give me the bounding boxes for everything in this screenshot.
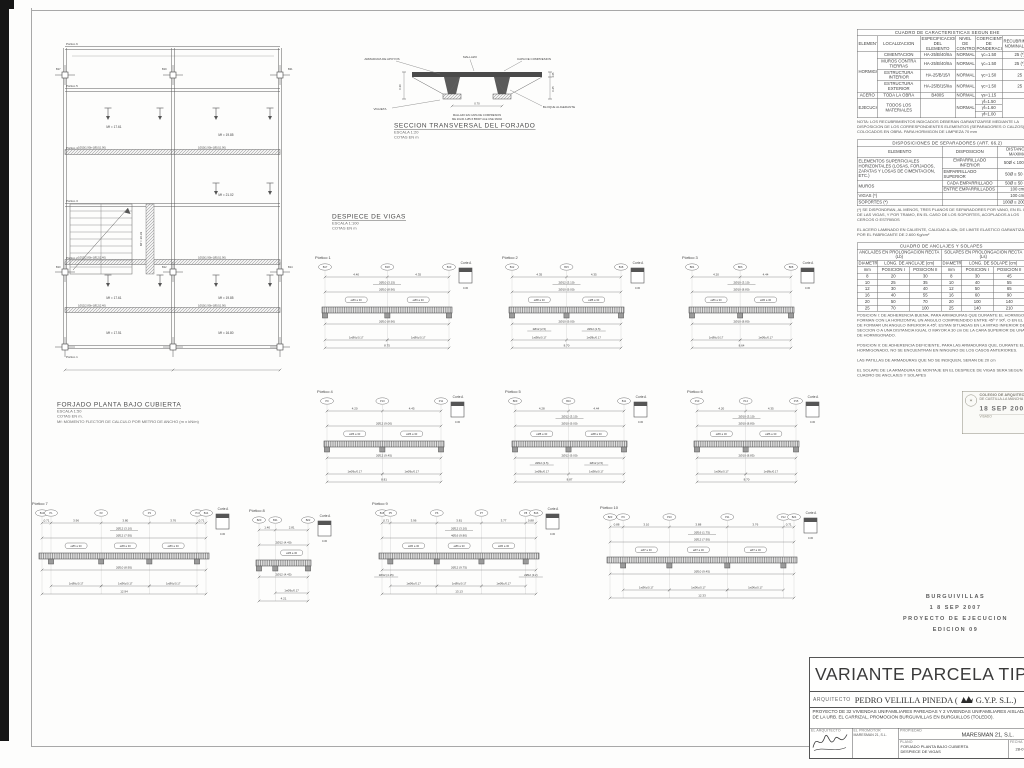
- visado-stamp: ✶ COLEGIO DE ARQUITECTOS DE CASTILLA-LA …: [962, 391, 1024, 435]
- span-dim: 3.80: [122, 518, 128, 522]
- corte-section-slab: [318, 521, 331, 525]
- beam-support: [743, 447, 748, 452]
- portico-title: Pórtico 2: [502, 255, 519, 260]
- table-cell: 70: [877, 305, 909, 311]
- span-dim: 0.88: [614, 522, 620, 526]
- stirrup-spacing: 1eØ6c/0.17: [406, 581, 421, 585]
- portico-detail: Pórtico 2B12B15B184.354.352Ø12 (3.10)2Ø1…: [500, 252, 655, 356]
- project-description: PROYECTO DE 32 VIVIENDAS UNIFAMILIARES P…: [810, 708, 1024, 729]
- separadores-note2: EL ACERO LAMINADO EN CALIENTE, CALIDAD A…: [857, 227, 1024, 237]
- stirrup-spacing: 1eØ6c/0.17: [284, 588, 299, 592]
- corte-label: Corte A: [461, 261, 473, 265]
- stirrup-tag: eØ6 a 30: [760, 298, 772, 302]
- beam-support: [322, 313, 327, 318]
- gyp-logo-icon: [961, 692, 973, 708]
- table-anclajes: CUADRO DE ANCLAJES Y SOLAPESANCLAJES EN …: [857, 242, 1024, 311]
- beam-support: [305, 566, 310, 571]
- rebar-top: 2Ø10 (8.90): [379, 287, 395, 291]
- span-dim: 3.96: [411, 518, 417, 522]
- property-label: PROPIEDAD: [900, 729, 922, 733]
- rebar-note2: 2Ø12 (4.15): [379, 573, 394, 577]
- stirrup-spacing: 1eØ8c/0.17: [535, 469, 550, 473]
- stirrup-tag: eØ6 a 30: [351, 298, 363, 302]
- corte-dim: 0.30: [635, 286, 641, 290]
- span-dim: 2.81: [289, 525, 295, 529]
- beam-support: [273, 566, 278, 571]
- corte-dim: 0.30: [322, 539, 328, 543]
- beam-bar: [607, 557, 797, 563]
- table-cell: ELEMENTO: [857, 146, 942, 157]
- table-cell: DIAMETRO: [941, 260, 961, 266]
- architect-label: ARQUITECTO: [810, 697, 855, 703]
- rebar-bottom: 2Ø12 (4.45): [275, 573, 291, 577]
- span-dim: 3.88: [695, 522, 701, 526]
- span-dim: 4.28: [539, 406, 545, 410]
- stirrup-tag: eØ6 a 30: [765, 432, 777, 436]
- beam-support: [479, 559, 484, 564]
- beam-support: [385, 313, 390, 318]
- span-dim: 4.35: [591, 272, 597, 276]
- rebar-bottom: 2Ø12 (9.00): [561, 454, 577, 458]
- corte-label: Corte A: [218, 507, 230, 511]
- stirrup-spacing: 1eØ6c/0.17: [411, 335, 426, 339]
- table-cell: ELEMENTO: [857, 36, 877, 52]
- portico-title: Pórtico 7: [32, 501, 49, 506]
- rebar-note2: 2Ø12 (2.5): [587, 327, 600, 331]
- span-dim: 3.96: [73, 518, 79, 522]
- table-cell: LOCALIZACION: [877, 36, 920, 52]
- support-tag: P9: [325, 399, 329, 403]
- support-tag: P10: [380, 399, 385, 403]
- portico-detail: Pórtico 6P13P14P154.204.352Ø10 (3.10)2Ø1…: [685, 386, 830, 490]
- support-tag: B14: [204, 511, 209, 515]
- beam-support: [793, 447, 798, 452]
- rebar-note: 2Ø10 (3.15): [379, 281, 395, 285]
- edition-line-project-name: BURGUIVILLAS: [888, 591, 1023, 602]
- portico-detail: Pórtico 5B09B10B114.284.442Ø12 (3.10)2Ø1…: [503, 386, 658, 490]
- beam-support: [48, 559, 53, 564]
- rebar-bottom: 2Ø10 (9.45): [694, 570, 710, 574]
- corte-section-slab: [631, 268, 644, 272]
- support-tag: B11: [622, 399, 627, 403]
- support-tag: B06: [738, 265, 743, 269]
- table-cell: γf=1.00: [975, 111, 1002, 117]
- corte-section-slab: [216, 514, 229, 518]
- table-cell: NORMAL: [955, 70, 975, 81]
- table-cell: ENTRE EMPARRILLADOS: [942, 186, 997, 192]
- edition-line-number: EDICION 09: [888, 624, 1023, 635]
- total-dim: 8.75: [384, 344, 390, 348]
- portico-title: Pórtico 1: [315, 255, 332, 260]
- total-dim: 8.64: [739, 344, 745, 348]
- corte-label: Corte A: [806, 511, 818, 515]
- corte-label: Corte A: [320, 514, 332, 518]
- corte-section-slab: [634, 402, 647, 406]
- corte-section-slab: [806, 402, 819, 406]
- edition-line-phase: PROYECTO DE EJECUCION: [888, 613, 1023, 624]
- property-and-sheet-cell: PROPIEDAD MARESMAN 21, S.L. PLANO FORJAD…: [899, 729, 1024, 759]
- stirrup-spacing: 1eØ6c/0.17: [764, 469, 779, 473]
- portico-title: Pórtico 4: [317, 389, 334, 394]
- span-dim: 4.44: [593, 406, 599, 410]
- stirrup-tag: eØ7 a 30: [641, 548, 653, 552]
- sheet-variant-title: VARIANTE PARCELA TIPO 58/1: [810, 664, 1024, 685]
- table-cell: MUROS CONTRA TIERRAS: [877, 58, 920, 69]
- stirrup-tag: eØ6 a 30: [286, 551, 298, 555]
- corte-label: Corte A: [633, 261, 645, 265]
- table-cell: NIVEL DE CONTROL: [955, 36, 975, 52]
- support-tag: B19: [447, 265, 452, 269]
- beam-bar: [694, 441, 799, 447]
- stirrup-tag: eØ6 a 30: [349, 432, 361, 436]
- rebar-top: 2Ø12 (7.95): [116, 533, 132, 537]
- stirrup-spacing: 1eØ8c/0.17: [589, 469, 604, 473]
- support-tag: B04: [690, 265, 695, 269]
- architect-row: ARQUITECTO PEDRO VELILLA PINEDA ( G.Y.P.…: [810, 692, 1024, 708]
- stirrup-tag: eØ6 a 30: [498, 544, 510, 548]
- caracteristicas-note: NOTA: LOS RECUBRIMIENTOS INDICADOS DEBER…: [857, 119, 1024, 134]
- beam-support: [621, 563, 626, 568]
- table-cell: [942, 199, 997, 205]
- stirrup-tag: eØ6 a 30: [408, 544, 420, 548]
- beam-support: [509, 313, 514, 318]
- support-tag: P9: [622, 515, 626, 519]
- rebar-note: 2Ø12 (3.10): [558, 281, 574, 285]
- span-dim: 1.40: [264, 525, 270, 529]
- stirrup-spacing: 1eØ6c/0.17: [452, 581, 467, 585]
- rebar-top: 2Ø12 (9.00): [376, 421, 392, 425]
- table-cell: 25: [941, 305, 961, 311]
- table-cell: HORMIGON: [857, 52, 877, 92]
- promoter-signature-cell: EL PROMOTOR MARESMAN 21, S.L.: [853, 729, 900, 759]
- support-tag: B10: [566, 399, 571, 403]
- total-dim: 12.94: [120, 590, 128, 594]
- corte-dim: 0.30: [805, 286, 811, 290]
- table-cell: MUROS: [857, 180, 942, 193]
- table-separadores: DISPOSICIONES DE SEPARADORES (ART. 66.2)…: [857, 139, 1024, 205]
- sheet-name-line2: DESPIECE DE VIGAS: [901, 750, 1008, 755]
- rebar-bottom: 2Ø10 (8.95): [116, 566, 132, 570]
- date-label: FECHA: [1010, 741, 1023, 745]
- architect-firm: G.Y.P. S.L.): [976, 695, 1016, 705]
- table-cell: 25: [1002, 70, 1024, 81]
- table-cell: ACERO: [857, 92, 877, 98]
- portico-detail: Pórtico 1B17B18B194.404.352Ø10 (3.15)2Ø1…: [313, 252, 483, 356]
- portico-detail: Pórtico 4P9P10P114.204.452Ø12 (9.00)eØ6 …: [315, 386, 475, 490]
- stirrup-tag: eØ7 a 30: [750, 548, 762, 552]
- support-tag: P14: [743, 399, 748, 403]
- title-block-lower: PROYECTO DE 32 VIVIENDAS UNIFAMILIARES P…: [810, 708, 1024, 758]
- rebar-note2: 2Ø12 (2.5): [535, 461, 548, 465]
- support-tag: B12: [510, 265, 515, 269]
- table-cell: EJECUCION: [857, 99, 877, 118]
- table-cell: 210: [993, 305, 1024, 311]
- corte-section-slab: [451, 402, 464, 406]
- stamp-college-line2: DE CASTILLA-LA MANCHA · TOLEDO: [980, 398, 1024, 402]
- table-cell: 50Ø ≤ 50 cm: [997, 169, 1024, 180]
- corte-dim: 0.30: [638, 420, 644, 424]
- beam-support: [194, 559, 199, 564]
- support-tag: B18: [385, 265, 390, 269]
- table-cell: COEFICIENTE DE PONDERACION: [975, 36, 1002, 52]
- beam-bar: [689, 307, 794, 313]
- table-cell: NORMAL: [955, 81, 975, 92]
- table-cell: TODA LA OBRA: [877, 92, 920, 98]
- portico-title: Pórtico 9: [372, 501, 389, 506]
- portico-detail: Pórtico 9B15P5P6P7P8B160.713.963.813.770…: [370, 498, 570, 602]
- support-tag: P12: [781, 515, 786, 519]
- span-dim: 4.35: [768, 406, 774, 410]
- stirrup-tag: eØ6 a 30: [454, 544, 466, 548]
- table-cell: γc=1.50: [975, 70, 1002, 81]
- support-tag: B08: [789, 265, 794, 269]
- beam-bar: [322, 307, 452, 313]
- support-tag: P11: [725, 515, 730, 519]
- beam-support: [781, 563, 786, 568]
- table-cell: LONG. DE SOLAPE (cm): [961, 260, 1024, 266]
- corte-section-slab: [801, 268, 814, 272]
- table-cell: HA-25/B/15/I: [920, 70, 955, 81]
- separadores-note1: (*) SE DISPONDRAN, AL MENOS, TRES PLANOS…: [857, 207, 1024, 222]
- table-cell: NORMAL: [955, 92, 975, 98]
- table-cell: POSICION II: [909, 267, 941, 273]
- corte-dim: 0.30: [550, 532, 556, 536]
- title-block: VARIANTE PARCELA TIPO 58/1 ARQUITECTO PE…: [809, 657, 1024, 759]
- support-tag: B17: [323, 265, 328, 269]
- total-dim: 8.70: [564, 344, 570, 348]
- stirrup-tag: eØ8 a 30: [591, 432, 603, 436]
- beam-bar: [324, 441, 444, 447]
- rebar-bottom: 2Ø10 (9.00): [558, 320, 574, 324]
- rebar-note: 2Ø10 (3.10): [733, 281, 749, 285]
- table-cell: NORMAL: [955, 58, 975, 69]
- stamp-emblem-icon: ✶: [963, 392, 980, 434]
- beam-support: [512, 447, 517, 452]
- corte-dim: 0.30: [810, 420, 816, 424]
- span-dim: 4.35: [536, 272, 542, 276]
- beam-support: [689, 313, 694, 318]
- support-tag: P10: [667, 515, 672, 519]
- corte-section-slab: [804, 518, 817, 522]
- table-cell: RECUBRIMIENTO NOMINAL (mm): [1002, 36, 1024, 52]
- table-cell: ESTRUCTURA INTERIOR: [877, 70, 920, 81]
- rebar-bottom: 2Ø12 (9.75): [451, 566, 467, 570]
- corte-dim: 0.30: [455, 420, 461, 424]
- rebar-note2: 2Ø12 (2.5): [590, 461, 603, 465]
- beam-bar: [379, 553, 539, 559]
- table-cell: SOPORTES (*): [857, 199, 942, 205]
- beam-bar: [512, 441, 627, 447]
- stirrup-spacing: 1eØ6c/0.17: [347, 469, 362, 473]
- corte-label: Corte A: [548, 507, 560, 511]
- table-cell: 50Ø ≤ 100 cm: [997, 157, 1024, 168]
- corte-label: Corte A: [453, 395, 465, 399]
- corte-dim: 0.30: [220, 532, 226, 536]
- span-dim: 0.71: [786, 522, 792, 526]
- stirrup-spacing: 1eØ6c/0.17: [496, 581, 511, 585]
- table-cell: EMPARRILLADO INFERIOR: [942, 157, 997, 168]
- support-tag: P4: [195, 511, 199, 515]
- stirrup-tag: eØ8 a 30: [534, 298, 546, 302]
- portico-title: Pórtico 6: [687, 389, 704, 394]
- stirrup-spacing: 1eØ6c/0.17: [758, 335, 773, 339]
- span-dim: 3.81: [456, 518, 462, 522]
- beam-support: [99, 559, 104, 564]
- total-dim: 8.81: [381, 478, 387, 482]
- support-tag: B09: [513, 399, 518, 403]
- total-dim: 12.33: [698, 594, 706, 598]
- beam-support: [566, 447, 571, 452]
- span-dim: 4.40: [353, 272, 359, 276]
- anclajes-note3: LAS PATILLAS DE ARMADURAS QUE NO SE INDI…: [857, 358, 1024, 363]
- beam-support: [380, 447, 385, 452]
- title-block-heading-row: VARIANTE PARCELA TIPO 58/1: [810, 658, 1024, 692]
- support-tag: P1: [49, 511, 53, 515]
- support-tag: B18: [619, 265, 624, 269]
- table-cell: POSICION II: [993, 267, 1024, 273]
- stirrup-spacing: 1eØ6c/0.17: [349, 335, 364, 339]
- span-dim: 3.77: [501, 518, 507, 522]
- beam-support: [667, 563, 672, 568]
- table-cell: ESTRUCTURA EXTERIOR: [877, 81, 920, 92]
- support-tag: P3: [148, 511, 152, 515]
- scanned-structural-plan-sheet: { "plan": { "title": "FORJADO PLANTA BAJ…: [0, 0, 1024, 768]
- beam-support: [446, 313, 451, 318]
- span-dim: 4.35: [415, 272, 421, 276]
- span-dim: 4.20: [718, 406, 724, 410]
- rebar-top: 4Ø16 (9.80): [451, 533, 467, 537]
- beam-support: [388, 559, 393, 564]
- sheet-name-label: PLANO: [900, 741, 913, 745]
- stirrup-spacing: 1eØ6c/0.17: [709, 335, 724, 339]
- rebar-top: 2Ø10 (9.00): [558, 287, 574, 291]
- table-cell: γc=1.50: [975, 81, 1002, 92]
- rebar-note: 2Ø10 (3.10): [738, 415, 754, 419]
- span-dim: 0.71: [44, 518, 50, 522]
- table-cell: POSICION I: [961, 267, 993, 273]
- beam-bar: [509, 307, 624, 313]
- stirrup-tag: eØ8 a 30: [536, 432, 548, 436]
- support-tag: B23: [608, 515, 613, 519]
- span-dim: 4.44: [763, 272, 769, 276]
- rebar-top: 2Ø12 (4.40): [275, 540, 291, 544]
- portico-title: Pórtico 8: [249, 508, 266, 513]
- beam-support: [147, 559, 152, 564]
- total-dim: 13.13: [455, 590, 463, 594]
- support-tag: B15: [564, 265, 569, 269]
- table-cell: [1002, 99, 1024, 118]
- stirrup-tag: eØ6 a 30: [711, 298, 723, 302]
- stamp-date: 18 SEP 2007: [980, 404, 1024, 412]
- architect-signature-cell: EL ARQUITECTO: [810, 729, 853, 759]
- edition-stamp: BURGUIVILLAS 1 8 SEP 2007 PROYECTO DE EJ…: [888, 591, 1023, 653]
- span-dim: 0.71: [199, 518, 205, 522]
- table-cell: 140: [961, 305, 993, 311]
- portico-title: Pórtico 10: [600, 505, 619, 510]
- stirrup-tag: eØ6 a 30: [71, 544, 83, 548]
- rebar-bottom: 2Ø10 (8.90): [379, 320, 395, 324]
- table-cell: HA-25/B/40/IIa: [920, 58, 955, 69]
- stirrup-tag: eØ7 a 30: [693, 548, 705, 552]
- beam-support: [564, 313, 569, 318]
- beam-support: [438, 447, 443, 452]
- stamp-visado-label: VISADO: [980, 414, 1024, 419]
- table-cell: POSICION I: [877, 267, 909, 273]
- corte-label: Corte A: [803, 261, 815, 265]
- span-dim: 0.71: [383, 518, 389, 522]
- rebar-note2: 2Ø12 (2.5): [533, 327, 546, 331]
- table-cell: HA-25/B/40/IIa: [920, 52, 955, 58]
- support-tag: B22: [306, 518, 311, 522]
- span-dim: 4.20: [352, 406, 358, 410]
- portico-detail: Pórtico 7B13P1P2P3P4B140.713.963.803.760…: [30, 498, 240, 602]
- beam-support: [434, 559, 439, 564]
- promoter-sub-label: MARESMAN 21, S.L.: [854, 734, 887, 738]
- span-dim: 4.45: [409, 406, 415, 410]
- beam-support: [618, 313, 623, 318]
- corte-section-slab: [459, 268, 472, 272]
- stirrup-tag: eØ6 a 30: [413, 298, 425, 302]
- rebar-note2: 2Ø12 (3.2): [524, 573, 537, 577]
- corte-section-slab: [546, 514, 559, 518]
- stirrup-spacing: 1eØ6c/0.17: [691, 585, 706, 589]
- table-cell: 25: [1002, 81, 1024, 92]
- stirrup-spacing: 1eØ6c/0.17: [639, 585, 654, 589]
- rebar-top: 2Ø10 (9.00): [561, 421, 577, 425]
- support-tag: P7: [480, 511, 484, 515]
- stirrup-tag: eØ8 a 30: [588, 298, 600, 302]
- span-dim: 4.20: [713, 272, 719, 276]
- table-cell: CADA EMPARRILLADO: [942, 180, 997, 186]
- table-cell: DIAMETRO: [857, 260, 877, 266]
- portico-detail: Pórtico 8B20B21B221.402.812Ø12 (4.40)eØ6…: [247, 505, 342, 609]
- stirrup-spacing: 1eØ8c/0.17: [587, 335, 602, 339]
- support-tag: B16: [534, 511, 539, 515]
- table-cell: ANCLAJES EN PROLONGACION RECTA (Lb): [857, 249, 941, 260]
- table-cell: γc=1.50: [975, 58, 1002, 69]
- total-dim: 4.21: [281, 597, 287, 601]
- rebar-top: 2Ø10 (8.80): [738, 421, 754, 425]
- table-cell: ESPECIFICACION DEL ELEMENTO: [920, 36, 955, 52]
- table-cell: DISPOSICION: [942, 146, 997, 157]
- span-dim: 3.76: [752, 522, 758, 526]
- table-caracteristicas: CUADRO DE CARACTERISTICAS SEGUN EHEELEME…: [857, 29, 1024, 118]
- support-tag: P15: [794, 399, 799, 403]
- stirrup-spacing: 1eØ8c/0.17: [532, 335, 547, 339]
- table-cell: 25: [857, 305, 877, 311]
- table-cell: 100Ø ≤ 200 cm: [997, 199, 1024, 205]
- stirrup-spacing: 1eØ6c/0.17: [404, 469, 419, 473]
- table-cell: LONG. DE ANCLAJE (cm): [877, 260, 941, 266]
- beam-support: [621, 447, 626, 452]
- beam-support: [788, 313, 793, 318]
- date-cell: FECHA 28-07-07: [1009, 740, 1024, 758]
- table-cell: NORMAL: [955, 52, 975, 58]
- support-tag: B13: [40, 511, 45, 515]
- support-tag: P2: [100, 511, 104, 515]
- promoter-label: EL PROMOTOR: [854, 729, 881, 733]
- table-cell: 25 (*): [1002, 58, 1024, 69]
- architect-signature-label: EL ARQUITECTO: [811, 729, 841, 733]
- table-cell: NORMAL: [955, 99, 975, 118]
- stirrup-spacing: 1eØ6c/0.17: [118, 581, 133, 585]
- support-tag: B21: [273, 518, 278, 522]
- beam-support: [256, 566, 261, 571]
- stirrup-spacing: 1eØ6c/0.17: [714, 469, 729, 473]
- table-cell: EMPARRILLADO SUPERIOR: [942, 169, 997, 180]
- table-cell: 100: [909, 305, 941, 311]
- rebar-note: 2Ø12 (3.10): [451, 527, 467, 531]
